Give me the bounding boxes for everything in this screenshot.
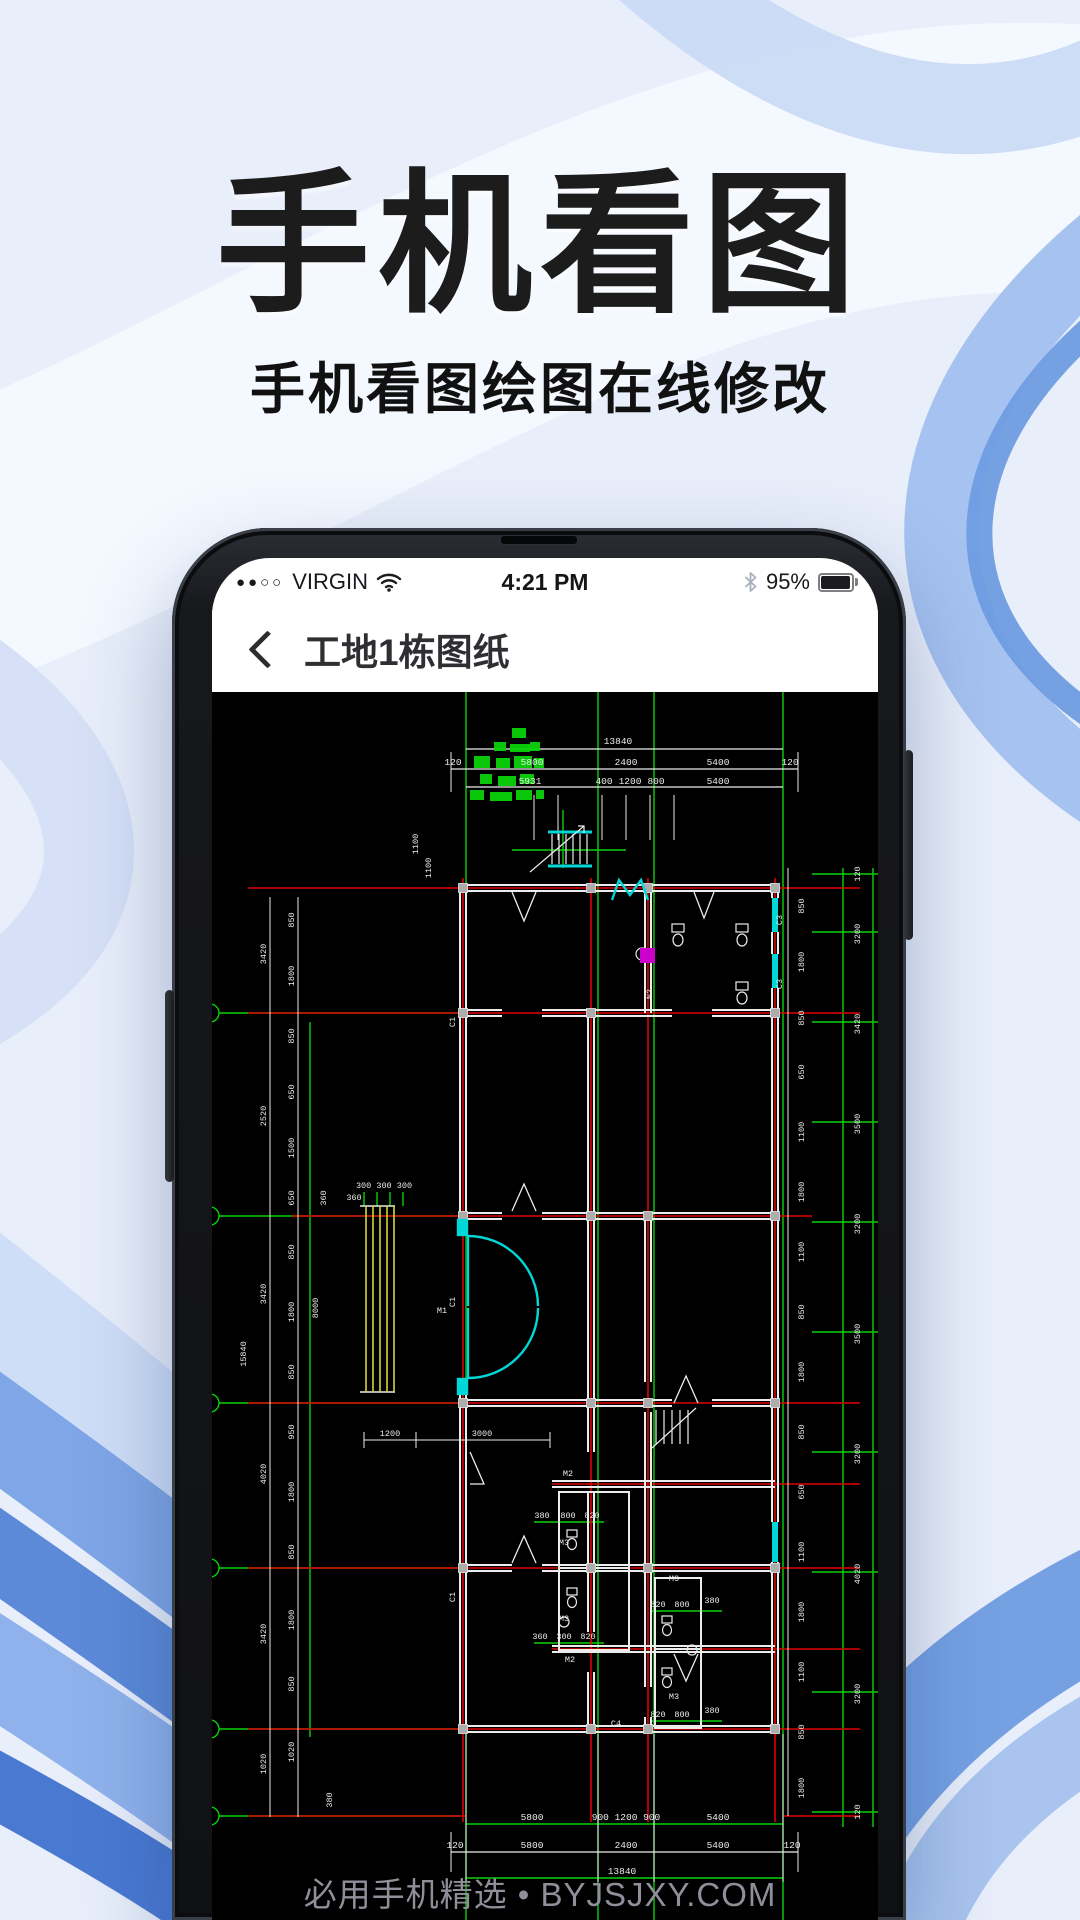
plan-label: 1100 bbox=[424, 858, 434, 878]
dim-label: 400 bbox=[595, 776, 612, 787]
bluetooth-icon bbox=[744, 572, 758, 592]
dim-label: 1800 bbox=[797, 1182, 807, 1202]
plan-label: 360 bbox=[532, 1632, 547, 1642]
dim-label: 5800 bbox=[521, 1840, 544, 1851]
dim-label: 3420 bbox=[259, 1624, 269, 1644]
dim-label: 850 bbox=[287, 1544, 297, 1559]
dim-label: 3420 bbox=[259, 1284, 269, 1304]
battery-percent-label: 95% bbox=[766, 569, 810, 595]
power-button[interactable] bbox=[904, 750, 913, 940]
doors-windows-cyan bbox=[458, 832, 775, 1562]
dim-label: 15840 bbox=[239, 1341, 249, 1367]
dim-label: 650 bbox=[287, 1084, 297, 1099]
dim-label: 13840 bbox=[604, 736, 633, 747]
dim-label: 1800 bbox=[797, 1602, 807, 1622]
dim-label: 3420 bbox=[259, 944, 269, 964]
dim-label: 950 bbox=[287, 1424, 297, 1439]
dim-label: 650 bbox=[797, 1484, 807, 1499]
stairs-lower bbox=[652, 1408, 696, 1448]
dim-label: 1800 bbox=[287, 1610, 297, 1630]
dim-label: 850 bbox=[287, 1676, 297, 1691]
dim-label: 1020 bbox=[259, 1754, 269, 1774]
plan-label: 820 bbox=[650, 1710, 665, 1720]
dim-label: 3500 bbox=[853, 1324, 863, 1344]
dim-label: 3200 bbox=[853, 924, 863, 944]
plan-label: 800 bbox=[674, 1600, 689, 1610]
battery-icon bbox=[818, 573, 854, 592]
dims-left: 3420252034201584040203420102085018008506… bbox=[239, 912, 335, 1807]
floorplan-drawing: 1384012058002400540012059314001200800540… bbox=[212, 692, 878, 1920]
plan-label: 300 300 300 bbox=[356, 1181, 412, 1191]
dim-label: 3500 bbox=[853, 1114, 863, 1134]
plan-label: 380 bbox=[704, 1706, 719, 1716]
dim-label: 5931 bbox=[519, 776, 542, 787]
plan-label: 800 bbox=[674, 1710, 689, 1720]
plan-label: 380 bbox=[704, 1596, 719, 1606]
dim-label: 5800 bbox=[521, 1812, 544, 1823]
plan-label: M3 bbox=[669, 1574, 679, 1584]
plan-label: C1 bbox=[448, 1017, 458, 1027]
plan-label: C4 bbox=[611, 1719, 621, 1729]
dim-label: 850 bbox=[287, 1244, 297, 1259]
plan-label: 1200 bbox=[380, 1429, 400, 1439]
plan-label: C1 bbox=[448, 1592, 458, 1602]
plan-label: 3000 bbox=[472, 1429, 492, 1439]
dim-label: 3200 bbox=[853, 1684, 863, 1704]
dim-label: 5400 bbox=[707, 1812, 730, 1823]
plan-label: M2 bbox=[563, 1469, 573, 1479]
dim-label: 1800 bbox=[287, 1302, 297, 1322]
dim-label: 120 bbox=[853, 1804, 863, 1819]
dim-label: 1200 bbox=[619, 776, 642, 787]
plan-label: C3 bbox=[775, 915, 785, 925]
dim-label: 850 bbox=[797, 1304, 807, 1319]
page-title: 工地1栋图纸 bbox=[304, 622, 510, 676]
dim-label: 120 bbox=[783, 1840, 800, 1851]
dim-label: 360 bbox=[319, 1190, 329, 1205]
plan-label: M3 bbox=[669, 1692, 679, 1702]
plan-label: N2 bbox=[645, 989, 655, 999]
dim-label: 900 1200 900 bbox=[592, 1812, 661, 1823]
dim-label: 800 bbox=[647, 776, 664, 787]
plan-label: 800 bbox=[560, 1511, 575, 1521]
dim-label: 4020 bbox=[853, 1564, 863, 1584]
dim-label: 120 bbox=[853, 866, 863, 881]
dim-label: 650 bbox=[287, 1190, 297, 1205]
dim-label: 3420 bbox=[853, 1014, 863, 1034]
plan-label: 820 bbox=[580, 1632, 595, 1642]
magenta-marker bbox=[640, 948, 655, 963]
dim-label: 1800 bbox=[797, 952, 807, 972]
back-button[interactable] bbox=[236, 622, 290, 676]
plan-label: M2 bbox=[565, 1655, 575, 1665]
dim-label: 3200 bbox=[853, 1444, 863, 1464]
dim-label: 120 bbox=[446, 1840, 463, 1851]
plan-label: 300 bbox=[556, 1632, 571, 1642]
plan-label: M3 bbox=[559, 1538, 569, 1548]
dim-label: 2520 bbox=[259, 1106, 269, 1126]
plan-label: C3 bbox=[775, 979, 785, 989]
dim-label: 1800 bbox=[287, 1482, 297, 1502]
dimension-lines-white bbox=[451, 749, 798, 1872]
plan-label: 380 bbox=[534, 1511, 549, 1521]
plan-label: 820 bbox=[584, 1511, 599, 1521]
plan-label: C1 bbox=[448, 1297, 458, 1307]
plan-labels: M1M2M2M3M3M3M3C4C1C1C1C3C3N2110011001200… bbox=[346, 834, 785, 1729]
watermark-text: 必用手机精选 • BYJSJXY.COM bbox=[0, 1868, 1080, 1916]
dim-label: 3200 bbox=[853, 1214, 863, 1234]
dim-label: 120 bbox=[781, 757, 798, 768]
walls-white bbox=[270, 795, 788, 1882]
phone-screen: ●●○○ VIRGIN 4:21 PM 95% bbox=[212, 558, 878, 1920]
cad-canvas[interactable]: 1384012058002400540012059314001200800540… bbox=[212, 692, 878, 1920]
entrance-hatch-yellow bbox=[366, 1206, 394, 1392]
dim-label: 5800 bbox=[521, 757, 544, 768]
dims-right: 1203200342035003200350032004020320012085… bbox=[797, 866, 863, 1819]
plan-label: 1100 bbox=[411, 834, 421, 854]
dim-label: 850 bbox=[797, 1724, 807, 1739]
plan-label: M1 bbox=[437, 1306, 447, 1316]
dim-label: 2400 bbox=[615, 1840, 638, 1851]
dim-label: 850 bbox=[287, 1364, 297, 1379]
plan-label: M3 bbox=[559, 1614, 569, 1624]
hero-subtitle: 手机看图绘图在线修改 bbox=[0, 344, 1080, 424]
earpiece-speaker bbox=[500, 535, 578, 545]
dim-label: 850 bbox=[797, 1424, 807, 1439]
dim-label: 1100 bbox=[797, 1122, 807, 1142]
dim-label: 850 bbox=[287, 1028, 297, 1043]
dim-label: 120 bbox=[444, 757, 461, 768]
dim-label: 1020 bbox=[287, 1742, 297, 1762]
dim-label: 1800 bbox=[287, 966, 297, 986]
plan-label: 820 bbox=[650, 1600, 665, 1610]
status-right: 95% bbox=[744, 569, 854, 595]
nav-bar: 工地1栋图纸 bbox=[212, 606, 878, 692]
dim-label: 4020 bbox=[259, 1464, 269, 1484]
grid-lines-red bbox=[248, 878, 860, 1822]
phone-mockup: ●●○○ VIRGIN 4:21 PM 95% bbox=[172, 528, 906, 1920]
volume-button[interactable] bbox=[165, 990, 174, 1182]
dim-label: 1800 bbox=[797, 1362, 807, 1382]
dim-label: 1500 bbox=[287, 1138, 297, 1158]
dim-label: 1800 bbox=[797, 1778, 807, 1798]
dim-label: 2400 bbox=[615, 757, 638, 768]
dim-label: 850 bbox=[797, 1010, 807, 1025]
hero-title: 手机看图 bbox=[0, 120, 1080, 343]
dim-label: 1100 bbox=[797, 1662, 807, 1682]
dim-label: 650 bbox=[797, 1064, 807, 1079]
dim-label: 380 bbox=[325, 1792, 335, 1807]
dim-label: 850 bbox=[797, 898, 807, 913]
dim-label: 850 bbox=[287, 912, 297, 927]
status-bar: ●●○○ VIRGIN 4:21 PM 95% bbox=[212, 558, 878, 606]
dim-label: 5400 bbox=[707, 757, 730, 768]
dim-label: 1100 bbox=[797, 1242, 807, 1262]
dim-label: 1100 bbox=[797, 1542, 807, 1562]
dim-label: 5400 bbox=[707, 1840, 730, 1851]
dim-label: 8000 bbox=[311, 1298, 321, 1318]
page: 手机看图 手机看图绘图在线修改 ●●○○ VIRGIN 4:21 PM bbox=[0, 0, 1080, 1920]
dim-label: 5400 bbox=[707, 776, 730, 787]
plan-label: 360 bbox=[346, 1193, 361, 1203]
